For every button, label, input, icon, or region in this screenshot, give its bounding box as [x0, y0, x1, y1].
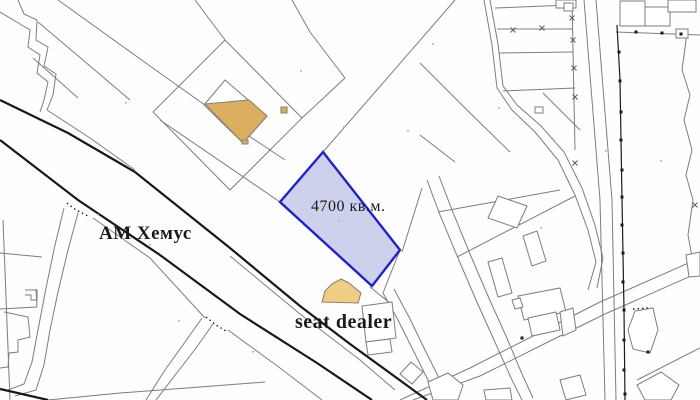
parcel-line — [8, 208, 64, 390]
speck — [149, 244, 151, 246]
parcel-line — [572, 0, 575, 150]
building-outline — [400, 362, 423, 384]
parcel-line — [25, 290, 37, 300]
parcel-line — [420, 135, 455, 162]
boundary-dot — [621, 224, 624, 227]
building-outline — [620, 1, 645, 26]
parcel-line — [637, 348, 700, 380]
boundary-dot — [619, 80, 622, 83]
tiny-marker-building — [242, 140, 248, 144]
building-outline — [488, 258, 512, 297]
boundary-dot — [647, 351, 650, 354]
parcel-line — [228, 330, 322, 400]
parcel-line — [323, 0, 455, 152]
boundary-dot — [661, 32, 664, 35]
building-outline — [637, 372, 679, 400]
speck — [338, 220, 340, 222]
boundary-dot — [680, 33, 683, 36]
building-outline — [560, 308, 576, 336]
highway-label: АМ Хемус — [99, 224, 192, 243]
parcel-line — [292, 0, 345, 78]
barn-building — [205, 100, 267, 143]
building-outline — [366, 339, 392, 355]
building-outline — [564, 3, 573, 11]
boundary-dot — [622, 252, 625, 255]
boundary-dot — [623, 309, 626, 312]
parcel-line — [38, 22, 130, 100]
speck — [540, 227, 542, 229]
building-outline — [645, 7, 670, 26]
speck — [343, 126, 345, 128]
parcel-line — [503, 88, 575, 91]
building-outline — [628, 308, 658, 353]
boundary-dot — [635, 31, 638, 34]
parcel-line — [420, 63, 510, 152]
building-outline — [428, 373, 463, 400]
parcel-line — [490, 0, 603, 288]
speck — [252, 351, 254, 353]
parcel-line — [596, 0, 616, 400]
parcel-line — [195, 0, 225, 40]
building-outline — [686, 252, 700, 277]
parcel-line — [584, 0, 605, 400]
parcel-line — [160, 120, 280, 202]
speck — [97, 214, 99, 216]
speck — [178, 320, 180, 322]
building-outline — [523, 231, 546, 266]
boundary-dot — [623, 369, 626, 372]
speck — [660, 160, 662, 162]
parcel-line — [48, 382, 265, 400]
boundary-dot — [621, 169, 624, 172]
building-outline — [484, 388, 512, 400]
parcel-line — [15, 213, 78, 396]
speck — [125, 102, 127, 104]
boundary-dot — [620, 111, 623, 114]
boundary-dot — [624, 393, 627, 396]
small-marker-building — [281, 107, 287, 113]
building-outline — [560, 375, 586, 400]
speck — [498, 107, 500, 109]
cadastral-map: АМ Хемус 4700 кв.м. seat dealer — [0, 0, 700, 400]
building-outline — [488, 196, 527, 228]
parcel-line — [0, 253, 42, 257]
dealer-building — [322, 279, 361, 303]
building-outline — [668, 0, 696, 12]
speck — [432, 43, 434, 45]
dealer-label: seat dealer — [295, 312, 392, 332]
boundary-dot — [618, 51, 621, 54]
parcel-line — [0, 312, 30, 368]
parcel-line — [402, 188, 422, 252]
parcel-line — [18, 0, 56, 110]
speck — [300, 70, 302, 72]
building-outline — [535, 107, 543, 113]
parcel-line — [47, 110, 135, 170]
boundary-dot — [620, 139, 623, 142]
speck — [407, 130, 409, 132]
parcel-line — [0, 12, 48, 112]
highway-line — [0, 389, 48, 400]
parcel-line — [33, 58, 78, 98]
boundary-dot — [621, 196, 624, 199]
parcel-line — [302, 78, 345, 118]
parcel-line — [58, 0, 285, 160]
boundary-dot — [521, 337, 524, 340]
highlighted-parcel — [280, 152, 400, 286]
boundary-dot — [622, 281, 625, 284]
boundary-dot — [623, 339, 626, 342]
area-label: 4700 кв.м. — [311, 199, 385, 215]
parcel-line — [682, 33, 694, 268]
parcel-line — [499, 52, 573, 53]
parcel-line — [3, 220, 10, 400]
speck — [605, 150, 607, 152]
